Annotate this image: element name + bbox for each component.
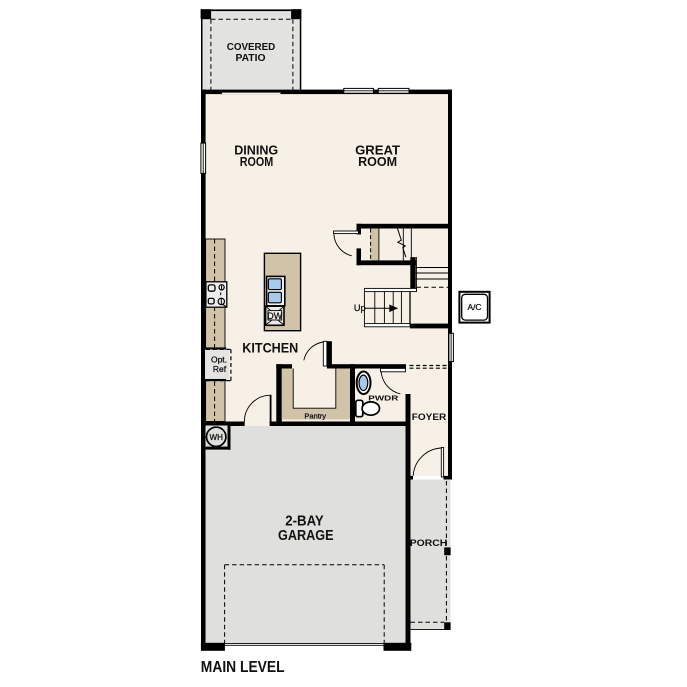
svg-text:ROOM: ROOM — [358, 154, 397, 169]
svg-text:Opt.: Opt. — [211, 355, 227, 365]
svg-text:Pantry: Pantry — [304, 412, 326, 421]
svg-text:PWDR: PWDR — [368, 394, 399, 403]
svg-text:2-BAY: 2-BAY — [285, 514, 324, 530]
svg-text:GARAGE: GARAGE — [278, 528, 334, 544]
svg-text:Up: Up — [354, 303, 366, 313]
svg-text:A/C: A/C — [468, 302, 482, 312]
svg-text:DW: DW — [267, 311, 282, 321]
svg-text:MAIN LEVEL: MAIN LEVEL — [201, 659, 285, 676]
svg-text:PATIO: PATIO — [236, 52, 266, 64]
svg-text:PORCH: PORCH — [410, 538, 448, 549]
svg-text:Ref: Ref — [213, 364, 227, 374]
svg-text:WH: WH — [210, 433, 224, 442]
svg-text:FOYER: FOYER — [412, 412, 447, 423]
svg-text:ROOM: ROOM — [240, 154, 274, 169]
svg-text:KITCHEN: KITCHEN — [242, 339, 298, 355]
